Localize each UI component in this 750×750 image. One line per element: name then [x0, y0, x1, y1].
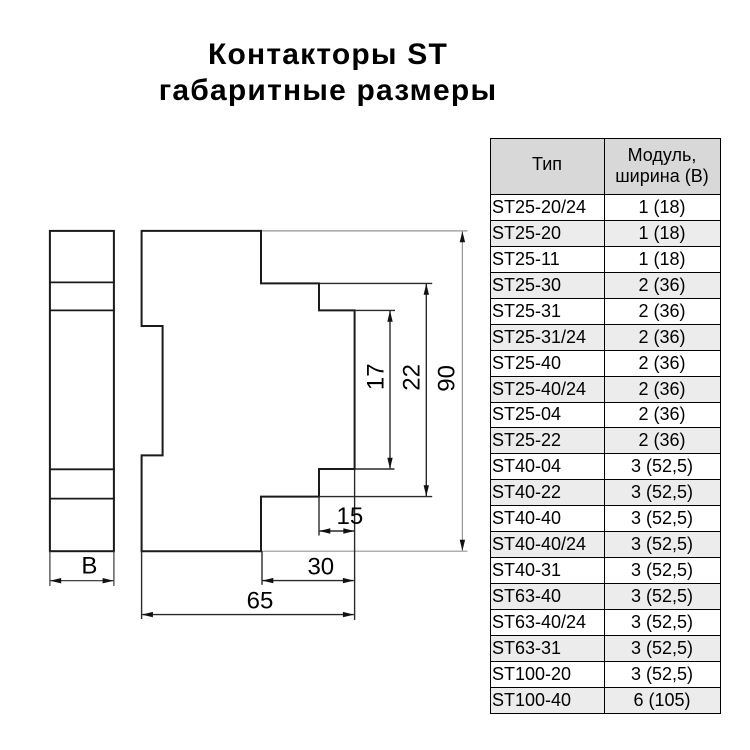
svg-text:30: 30 [307, 553, 334, 580]
svg-text:В: В [81, 553, 97, 580]
svg-text:22: 22 [399, 364, 426, 391]
svg-text:90: 90 [433, 365, 460, 392]
svg-text:17: 17 [362, 363, 389, 390]
svg-text:15: 15 [337, 503, 364, 530]
svg-text:65: 65 [247, 587, 274, 614]
